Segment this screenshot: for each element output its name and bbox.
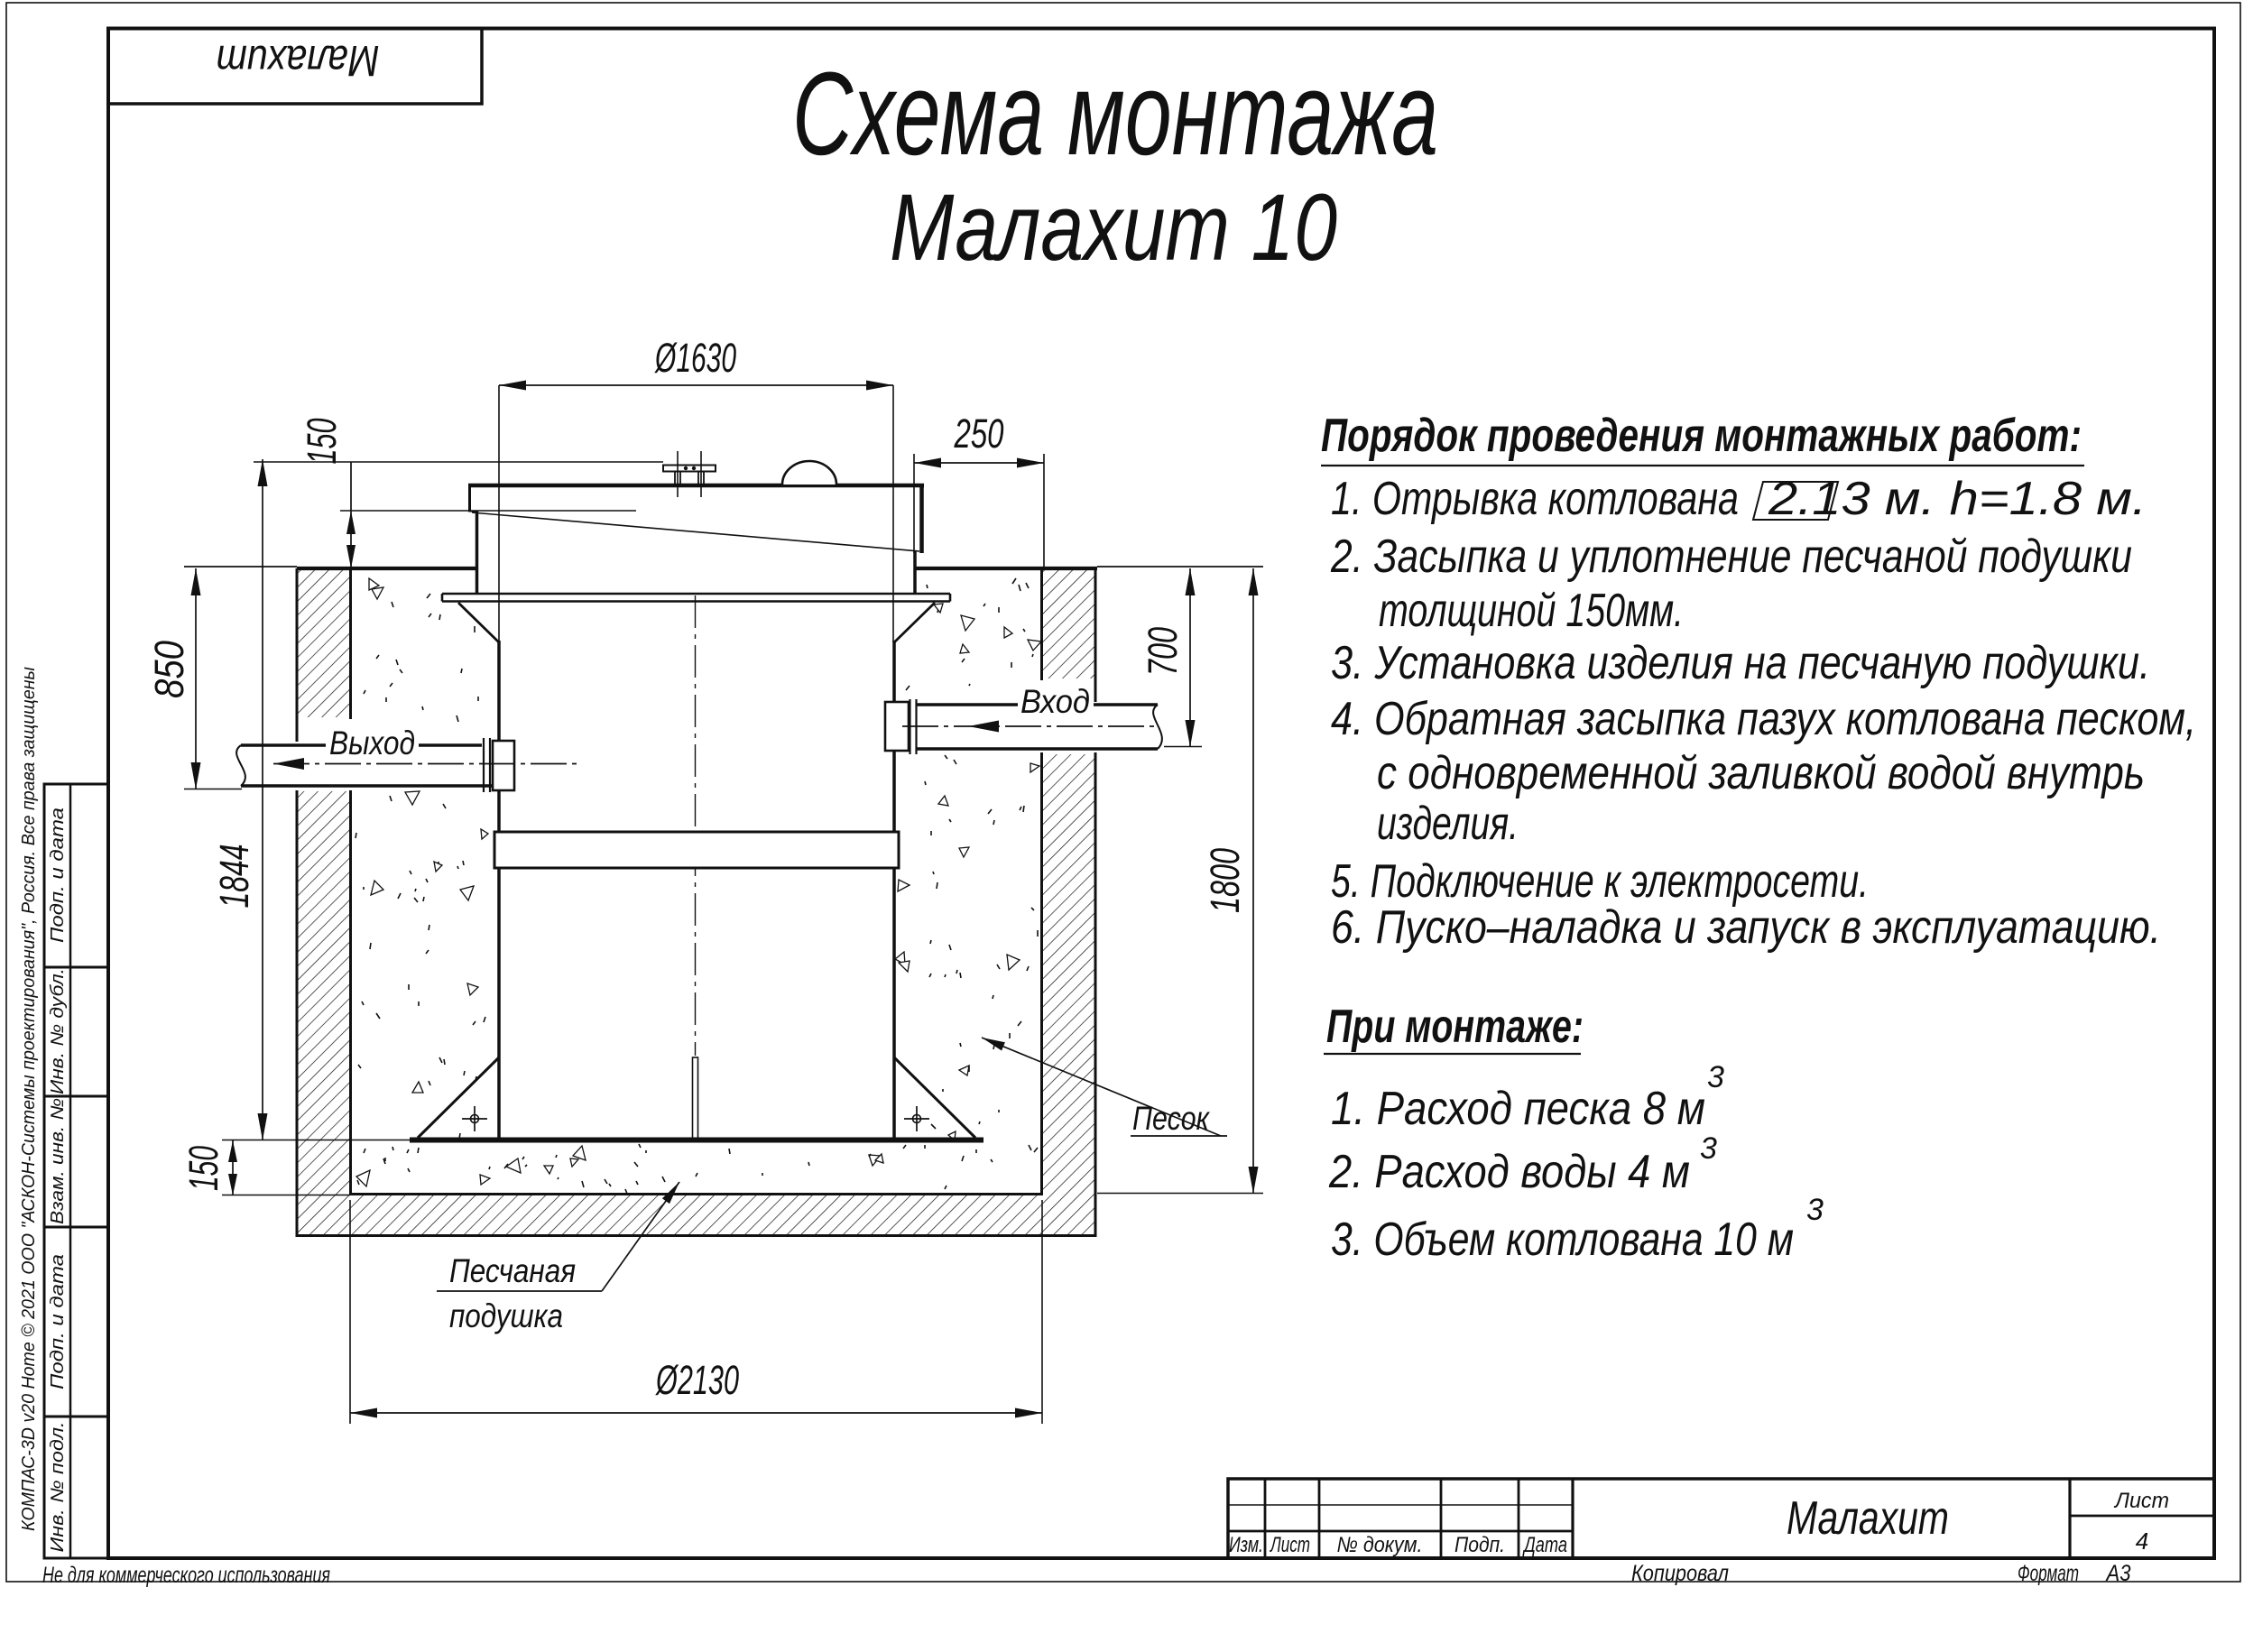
svg-text:Формат: Формат xyxy=(2018,1561,2079,1586)
svg-text:Ø2130: Ø2130 xyxy=(655,1357,739,1403)
svg-text:КОМПАС-3D v20 Home © 2021 ООО: КОМПАС-3D v20 Home © 2021 ООО "АСКОН-Сис… xyxy=(19,667,39,1531)
svg-text:Лист: Лист xyxy=(2113,1489,2169,1513)
svg-text:3. Объем котлована 10 м: 3. Объем котлована 10 м xyxy=(1331,1214,1794,1266)
svg-text:Малахит: Малахит xyxy=(217,36,380,84)
svg-text:Инв. № дубл.: Инв. № дубл. xyxy=(48,968,68,1094)
svg-text:2.13 м. h=1.8 м.: 2.13 м. h=1.8 м. xyxy=(1768,473,2147,525)
svg-text:Изм.: Изм. xyxy=(1229,1533,1263,1557)
svg-text:850: 850 xyxy=(146,641,192,698)
svg-text:2. Расход воды 4 м: 2. Расход воды 4 м xyxy=(1328,1146,1690,1198)
svg-text:700: 700 xyxy=(1140,627,1186,676)
svg-text:150: 150 xyxy=(299,419,345,465)
svg-text:Выход: Выход xyxy=(329,724,415,761)
svg-text:Инв. № подл.: Инв. № подл. xyxy=(48,1422,68,1553)
svg-text:150: 150 xyxy=(180,1146,226,1191)
svg-text:Взам. инв. №: Взам. инв. № xyxy=(48,1098,68,1224)
svg-text:Малахит: Малахит xyxy=(1787,1492,1949,1545)
svg-text:1. Расход песка 8 м: 1. Расход песка 8 м xyxy=(1331,1083,1705,1135)
svg-text:1800: 1800 xyxy=(1202,848,1248,913)
svg-text:Не для коммерческого использов: Не для коммерческого использования xyxy=(42,1563,330,1588)
svg-text:При монтаже:: При монтаже: xyxy=(1326,1001,1584,1053)
svg-text:А3: А3 xyxy=(2105,1561,2131,1586)
svg-text:3: 3 xyxy=(1700,1131,1717,1166)
svg-text:1844: 1844 xyxy=(211,844,257,909)
svg-text:Песчаная: Песчаная xyxy=(449,1252,576,1289)
svg-text:изделия.: изделия. xyxy=(1377,798,1519,850)
svg-text:6. Пуско–наладка и запуск в эк: 6. Пуско–наладка и запуск в эксплуатацию… xyxy=(1331,901,2161,954)
svg-text:с одновременной заливкой водой: с одновременной заливкой водой внутрь xyxy=(1377,747,2145,799)
svg-text:Копировал: Копировал xyxy=(1631,1561,1729,1586)
svg-text:1. Отрывка котлована: 1. Отрывка котлована xyxy=(1331,473,1739,525)
svg-text:Дата: Дата xyxy=(1522,1533,1567,1557)
svg-text:Лист: Лист xyxy=(1270,1533,1310,1557)
svg-text:№ докум.: № докум. xyxy=(1337,1533,1423,1557)
svg-text:Схема монтажа: Схема монтажа xyxy=(792,47,1438,180)
svg-text:5. Подключение к электросети.: 5. Подключение к электросети. xyxy=(1331,855,1869,908)
svg-text:3. Установка изделия на песчан: 3. Установка изделия на песчаную подушки… xyxy=(1331,637,2150,689)
svg-text:2. Засыпка и уплотнение песчан: 2. Засыпка и уплотнение песчаной подушки xyxy=(1330,531,2132,583)
svg-text:Подп. и дата: Подп. и дата xyxy=(48,1254,68,1389)
svg-text:Подп. и дата: Подп. и дата xyxy=(48,808,68,943)
svg-text:4. Обратная засыпка пазух котл: 4. Обратная засыпка пазух котлована песк… xyxy=(1331,693,2196,745)
svg-text:Подп.: Подп. xyxy=(1454,1533,1505,1557)
svg-text:толщиной 150мм.: толщиной 150мм. xyxy=(1379,585,1684,637)
svg-text:3: 3 xyxy=(1707,1060,1724,1094)
svg-text:Малахит 10: Малахит 10 xyxy=(890,175,1337,281)
svg-text:Песок: Песок xyxy=(1132,1100,1210,1137)
svg-text:3: 3 xyxy=(1806,1193,1824,1227)
svg-text:Порядок проведения монтажных р: Порядок проведения монтажных работ: xyxy=(1321,410,2082,462)
svg-text:250: 250 xyxy=(954,411,1004,457)
svg-text:подушка: подушка xyxy=(449,1297,563,1334)
svg-text:Ø1630: Ø1630 xyxy=(654,335,736,381)
svg-text:4: 4 xyxy=(2136,1527,2148,1555)
svg-text:Вход: Вход xyxy=(1020,683,1090,720)
